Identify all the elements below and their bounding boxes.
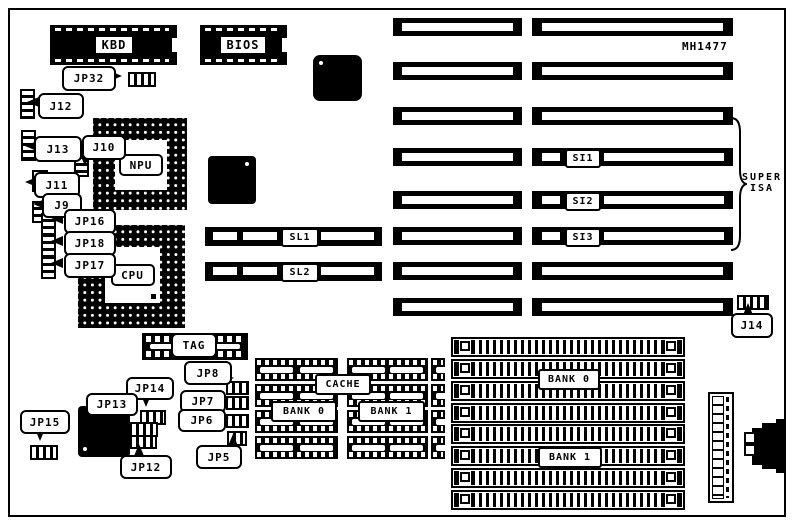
callout-tail [51, 258, 63, 268]
slot-bar [402, 232, 513, 240]
slot-bar [402, 67, 513, 75]
slot-bar [402, 153, 513, 161]
npu-label: NPU [119, 154, 163, 176]
motherboard-diagram: KBD BIOS NPU CPU [0, 0, 800, 527]
pin-column [712, 396, 724, 499]
pin1-dot [245, 162, 249, 166]
pin-row [205, 59, 279, 62]
callout-j12: J12 [38, 93, 84, 119]
slot-bar [402, 267, 513, 275]
si1-label: SI1 [565, 149, 601, 168]
isa-slot [393, 298, 522, 316]
qfp-chip-top [313, 55, 362, 101]
slot-bar [402, 196, 513, 204]
jp7-jumper [226, 396, 249, 410]
callout-j14: J14 [731, 313, 773, 338]
isa-slot [393, 262, 522, 280]
pin-column [726, 397, 729, 498]
isa-slot [393, 191, 522, 209]
npu-socket: NPU [93, 118, 187, 210]
simm-socket [451, 403, 685, 423]
callout-jp17: JP17 [64, 253, 116, 278]
slot-bar [213, 232, 237, 240]
pin1-dot [151, 294, 156, 299]
jp6-jumper [226, 414, 249, 428]
slot-sl1: SL1 [205, 227, 382, 246]
chip-notch [172, 38, 178, 52]
pin1-dot [83, 447, 87, 451]
cache-chip [431, 358, 445, 381]
slot-si2: SI2 [532, 191, 733, 209]
cache-chip [431, 410, 445, 433]
part-number: MH1477 [682, 40, 728, 53]
simm-socket [451, 337, 685, 357]
isa-slot [532, 18, 733, 36]
pin1-dot [319, 61, 323, 65]
slot-sl2: SL2 [205, 262, 382, 281]
callout-jp32: JP32 [62, 66, 116, 91]
slot-bar [542, 112, 723, 120]
slot-bar [604, 153, 724, 161]
slot-bar [542, 23, 723, 31]
isa-slot [393, 107, 522, 125]
slot-bar [243, 232, 277, 240]
simm-socket [451, 424, 685, 444]
slot-bar [213, 267, 237, 275]
slot-bar [542, 267, 723, 275]
callout-jp5: JP5 [196, 445, 242, 469]
slot-si1: SI1 [532, 148, 733, 166]
slot-bar [542, 67, 723, 75]
slot-bar [604, 232, 724, 240]
jp15-jumper [30, 445, 58, 460]
callout-j13: J13 [34, 136, 82, 162]
cache-chip [431, 384, 445, 407]
j14-header [737, 295, 769, 310]
si3-label: SI3 [565, 228, 601, 247]
cache-chip [255, 436, 338, 459]
cache-bank0-label: BANK 0 [271, 401, 337, 422]
slot-bar [321, 232, 374, 240]
pin-row [55, 28, 169, 31]
slot-bar [542, 196, 560, 204]
isa-slot [532, 262, 733, 280]
tag-label: TAG [171, 333, 217, 358]
isa-slot [393, 62, 522, 80]
isa-slot [393, 227, 522, 245]
pin-row [205, 28, 279, 31]
slot-bar [542, 153, 560, 161]
slot-si3: SI3 [532, 227, 733, 245]
si2-label: SI2 [565, 192, 601, 211]
callout-j10: J10 [82, 135, 126, 160]
super-isa-label: SUPER ISA [736, 172, 788, 194]
bios-label: BIOS [221, 37, 265, 53]
callout-jp12: JP12 [120, 455, 172, 479]
isa-slot [532, 62, 733, 80]
callout-jp13: JP13 [86, 393, 138, 416]
simm-socket [451, 490, 685, 510]
sl1-label: SL1 [281, 228, 319, 247]
mem-bank0-label: BANK 0 [538, 369, 600, 390]
super-isa-line1: SUPER [736, 172, 788, 183]
cache-chip [431, 436, 445, 459]
slot-bar [542, 303, 723, 311]
slot-bar [542, 232, 560, 240]
pin-row [55, 59, 169, 62]
simm-socket [451, 468, 685, 488]
jp32-jumper [128, 72, 156, 87]
cache-bank1-label: BANK 1 [358, 401, 425, 422]
sl2-label: SL2 [281, 263, 319, 282]
keyboard-din-connector [762, 423, 778, 469]
callout-jp6: JP6 [178, 409, 226, 432]
slot-bar [243, 267, 277, 275]
qfp-chip-mid [208, 156, 256, 204]
slot-bar [321, 267, 374, 275]
callout-jp15: JP15 [20, 410, 70, 434]
din-pin [744, 444, 756, 456]
chip-notch [282, 38, 288, 52]
kbd-label: KBD [96, 37, 132, 53]
isa-slot [532, 298, 733, 316]
cache-chip [347, 436, 428, 459]
cache-label: CACHE [315, 374, 371, 395]
callout-jp8: JP8 [184, 361, 232, 385]
isa-slot [393, 148, 522, 166]
isa-slot [532, 107, 733, 125]
mem-bank1-label: BANK 1 [538, 447, 602, 468]
slot-bar [402, 112, 513, 120]
slot-bar [604, 196, 724, 204]
super-isa-line2: ISA [736, 183, 788, 194]
slot-bar [402, 303, 513, 311]
callout-tail [51, 236, 63, 246]
power-connector [708, 392, 734, 503]
slot-bar [402, 23, 513, 31]
din-pin [744, 432, 756, 444]
cpu-label: CPU [111, 264, 155, 286]
isa-slot [393, 18, 522, 36]
